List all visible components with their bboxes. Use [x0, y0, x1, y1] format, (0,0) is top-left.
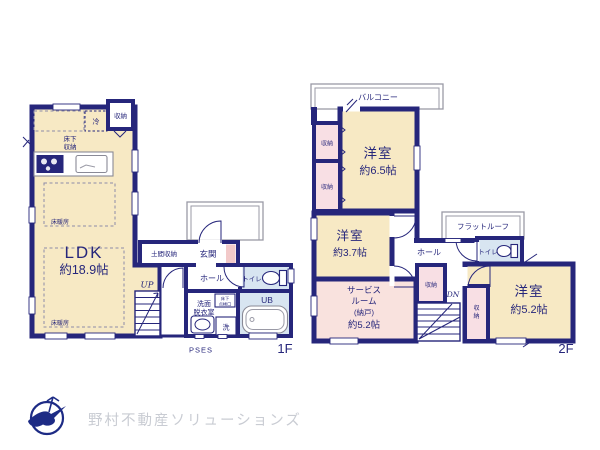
- kitchen-counter: [34, 152, 113, 176]
- window: [29, 297, 35, 314]
- label-underfloor-2: 収納: [64, 142, 77, 151]
- wall-stub-2f: [311, 107, 317, 125]
- label-closet-b: 収納: [321, 183, 333, 191]
- label-yoshitsu37-name: 洋室: [336, 228, 363, 243]
- label-pses: PSES: [189, 346, 213, 355]
- door-arc-yoshitsu-37: [394, 216, 416, 238]
- window: [85, 333, 115, 339]
- label-toilet-2f: トイレ: [478, 249, 498, 256]
- washbasin-icon: [191, 316, 214, 333]
- window: [132, 150, 138, 172]
- label-closet-center: 収納: [425, 281, 437, 289]
- burner-icon: [41, 159, 47, 165]
- label-doma-storage: 土間収納: [151, 249, 177, 258]
- label-flat-roof: フラットルーフ: [457, 222, 509, 231]
- window: [45, 333, 67, 339]
- toilet-tank: [280, 271, 287, 286]
- door-arc-toilet-2f: [456, 240, 477, 261]
- entrance-door-gap: [198, 240, 222, 245]
- label-underfloor-1: 床下: [64, 134, 78, 143]
- stairs-1f: [135, 291, 160, 336]
- sink-icon: [76, 156, 107, 173]
- toilet-bowl-2f: [497, 246, 511, 257]
- label-ldk-size: 約18.9帖: [59, 262, 108, 277]
- label-floor-heating-lower: 床暖房: [51, 319, 69, 327]
- toilet-icon-1f: [263, 271, 287, 286]
- genkan-hall-opening: [196, 263, 216, 268]
- label-service-2: ルーム: [351, 296, 376, 306]
- door-gap-yoshitsu-52: [463, 267, 468, 286]
- label-yoshitsu52-name: 洋室: [515, 283, 544, 299]
- label-washroom-1: 洗面: [197, 299, 211, 308]
- label-floor-heating-upper: 床暖房: [51, 218, 69, 226]
- ps-marker: [218, 335, 227, 339]
- window: [311, 218, 317, 240]
- floor-1f: LDK 約18.9帖 冷 収納 床下 収納 床暖房 床暖房 土間収納 玄関 ホー…: [23, 101, 294, 356]
- label-closet-right-1: 収: [473, 305, 479, 312]
- window: [53, 104, 80, 110]
- label-closet-right-2: 納: [473, 312, 479, 320]
- window: [29, 207, 35, 223]
- door-gap-service: [390, 266, 395, 286]
- label-washroom-2: 脱衣室: [194, 308, 215, 317]
- corridor-1f: [160, 265, 186, 336]
- room-yoshitsu-37: [314, 213, 392, 279]
- floor-2f: バルコニー 収納 収納 洋室 約6.5帖 洋室 約3.7帖 サービス ルーム (…: [311, 84, 574, 356]
- label-hall-2f: ホール: [417, 248, 441, 257]
- label-stairs-down: DN: [446, 290, 460, 299]
- label-unit-bath: UB: [261, 295, 273, 305]
- toilet-tank-2f: [511, 245, 518, 258]
- window: [288, 269, 294, 283]
- window: [311, 296, 317, 316]
- window: [132, 192, 138, 215]
- stairs-2f: [417, 303, 460, 341]
- entrance-porch: [187, 202, 263, 240]
- label-service-3: (納戸): [354, 307, 374, 317]
- label-yoshitsu37-size: 約3.7帖: [333, 246, 367, 259]
- floorplan-image: LDK 約18.9帖 冷 収納 床下 収納 床暖房 床暖房 土間収納 玄関 ホー…: [0, 0, 600, 450]
- label-hall-1f: ホール: [200, 274, 224, 283]
- label-laundry: 洗: [223, 323, 230, 332]
- label-toilet-1f: トイレ: [242, 276, 262, 283]
- label-ldk-name: LDK: [64, 243, 103, 262]
- bathtub-icon: [243, 306, 288, 333]
- high-window-tick: [525, 254, 537, 262]
- label-service-1: サービス: [347, 285, 381, 295]
- stove-icon: [37, 155, 64, 173]
- burner-icon: [51, 159, 57, 165]
- label-fridge: 冷: [93, 117, 100, 126]
- toilet-bowl: [263, 272, 280, 285]
- porch-outline: [187, 202, 263, 240]
- label-closet-a: 収納: [321, 140, 333, 148]
- label-yoshitsu52-size: 約5.2帖: [510, 302, 547, 316]
- wall-hall-west: [415, 209, 420, 241]
- label-floor-1f: 1F: [277, 341, 292, 356]
- ps-marker: [195, 335, 204, 339]
- genkan-accent-strip: [226, 245, 236, 264]
- label-yoshitsu65-size: 約6.5帖: [359, 163, 396, 177]
- burner-icon: [46, 166, 50, 170]
- label-floor-2f: 2F: [558, 341, 573, 356]
- window: [445, 239, 461, 243]
- window: [496, 338, 526, 344]
- label-hatch-2: 点検口: [219, 301, 232, 308]
- window: [330, 338, 358, 344]
- window: [249, 333, 277, 339]
- label-yoshitsu65-name: 洋室: [364, 145, 393, 161]
- label-genkan: 玄関: [199, 249, 216, 259]
- label-storage-top: 収納: [114, 111, 127, 120]
- balcony-door-gap: [343, 107, 360, 112]
- window: [414, 146, 420, 170]
- label-balcony: バルコニー: [358, 93, 398, 102]
- company-logo: 野村不動産ソリューションズ: [28, 397, 302, 434]
- label-service-size: 約5.2帖: [348, 319, 381, 331]
- toilet-icon-2f: [497, 245, 518, 258]
- floorplan-svg: LDK 約18.9帖 冷 収納 床下 収納 床暖房 床暖房 土間収納 玄関 ホー…: [0, 0, 600, 450]
- company-name: 野村不動産ソリューションズ: [88, 412, 302, 429]
- label-stairs-up: UP: [141, 281, 154, 291]
- door-gap-yoshitsu-37: [390, 216, 395, 237]
